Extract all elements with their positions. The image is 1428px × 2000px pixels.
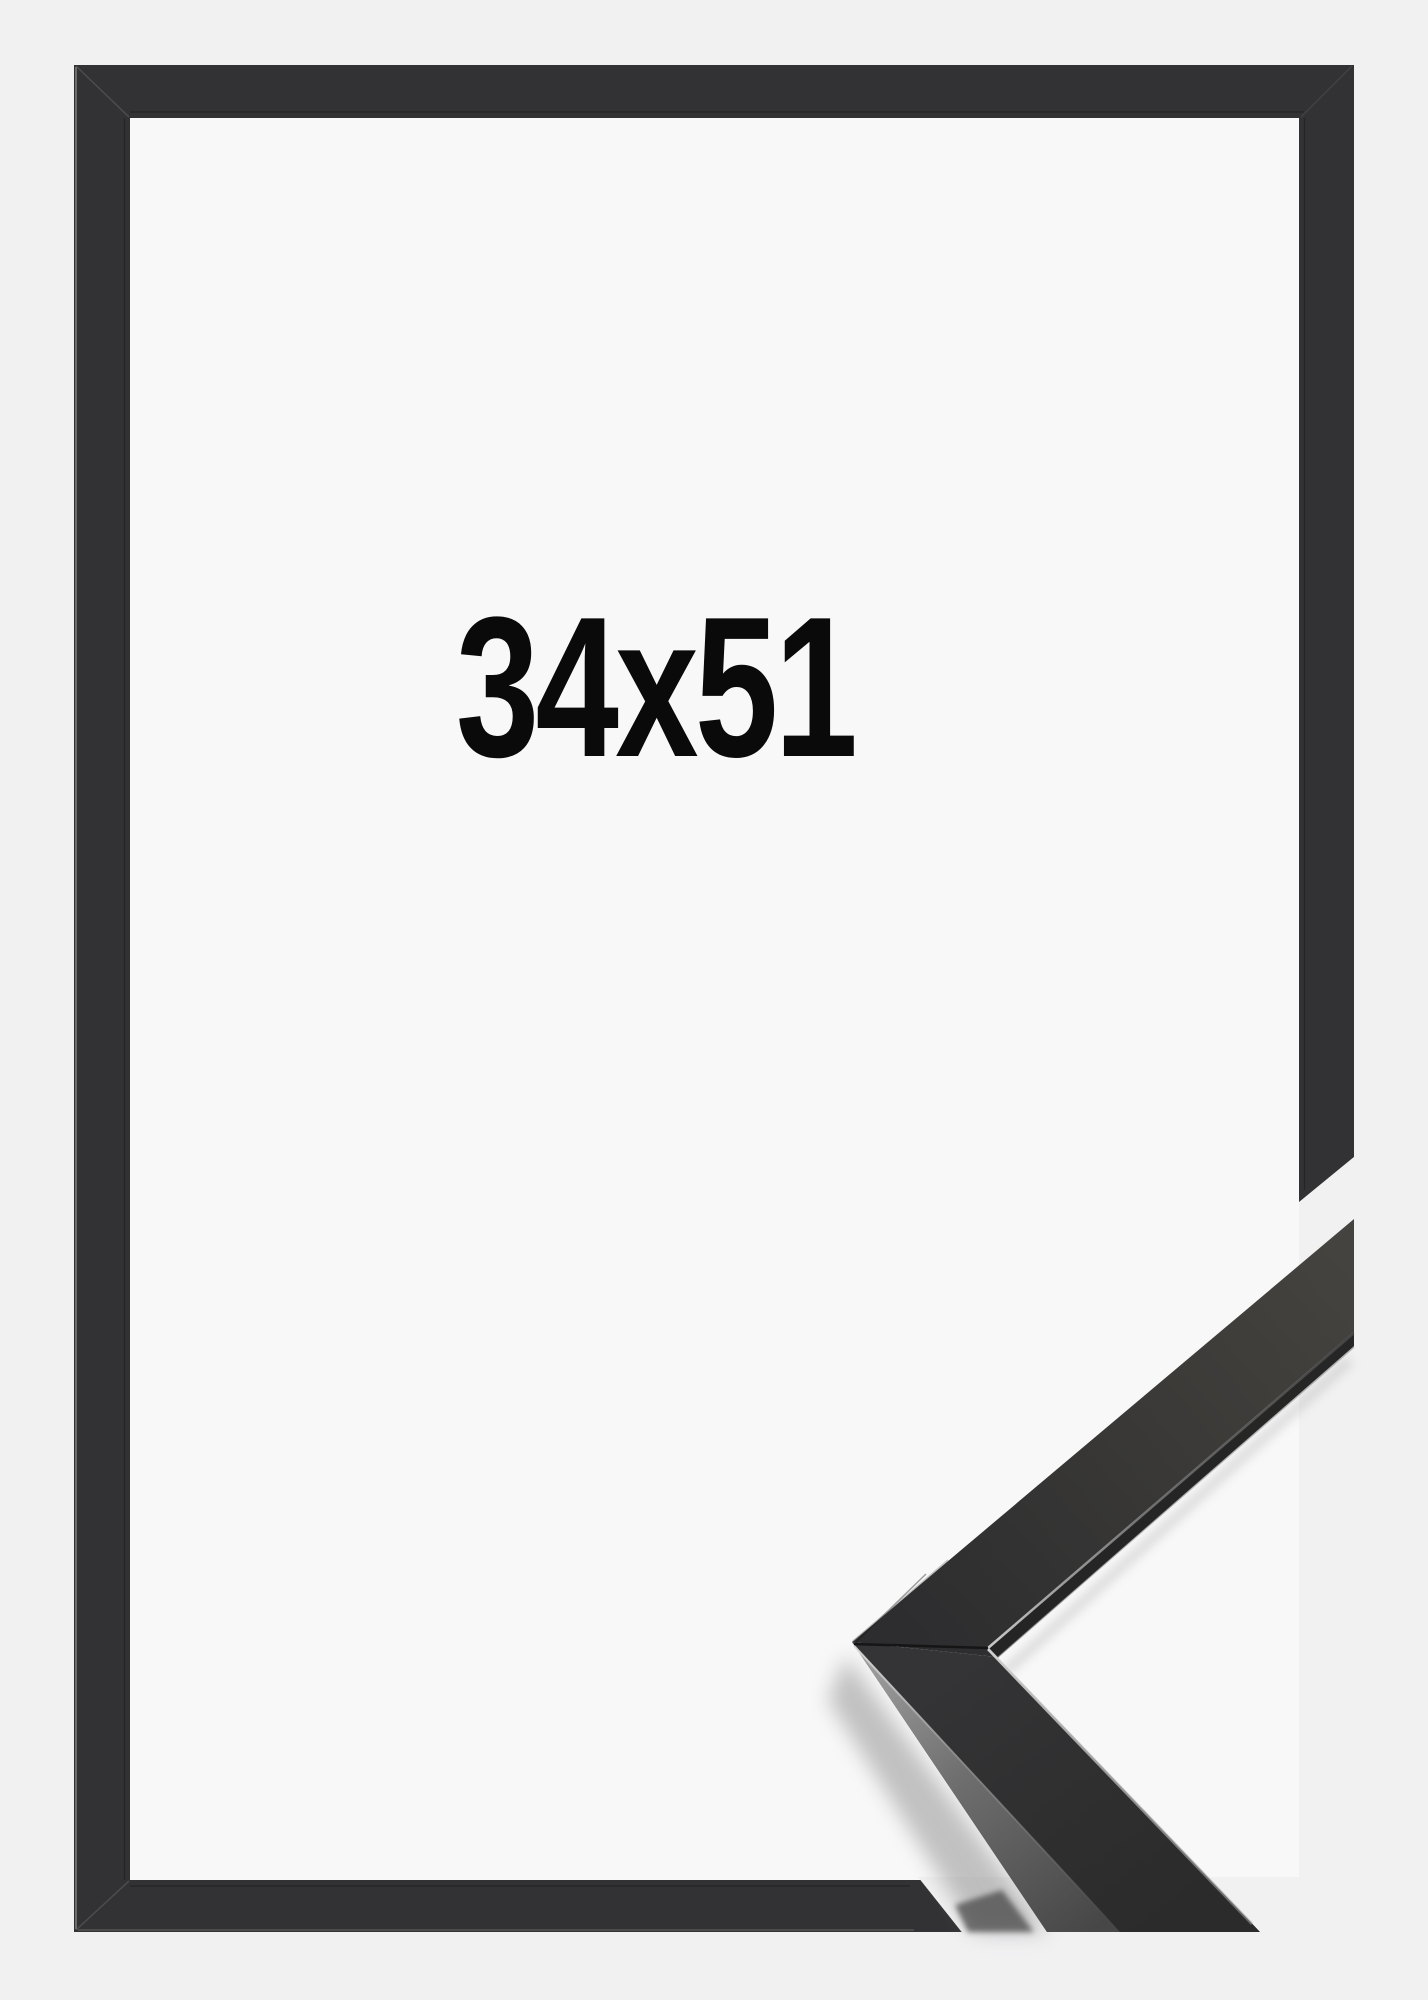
product-photo: 34x51 (0, 0, 1428, 2000)
frame-illustration (0, 0, 1428, 2000)
frame-interior (130, 118, 1299, 1880)
size-label: 34x51 (456, 588, 854, 788)
